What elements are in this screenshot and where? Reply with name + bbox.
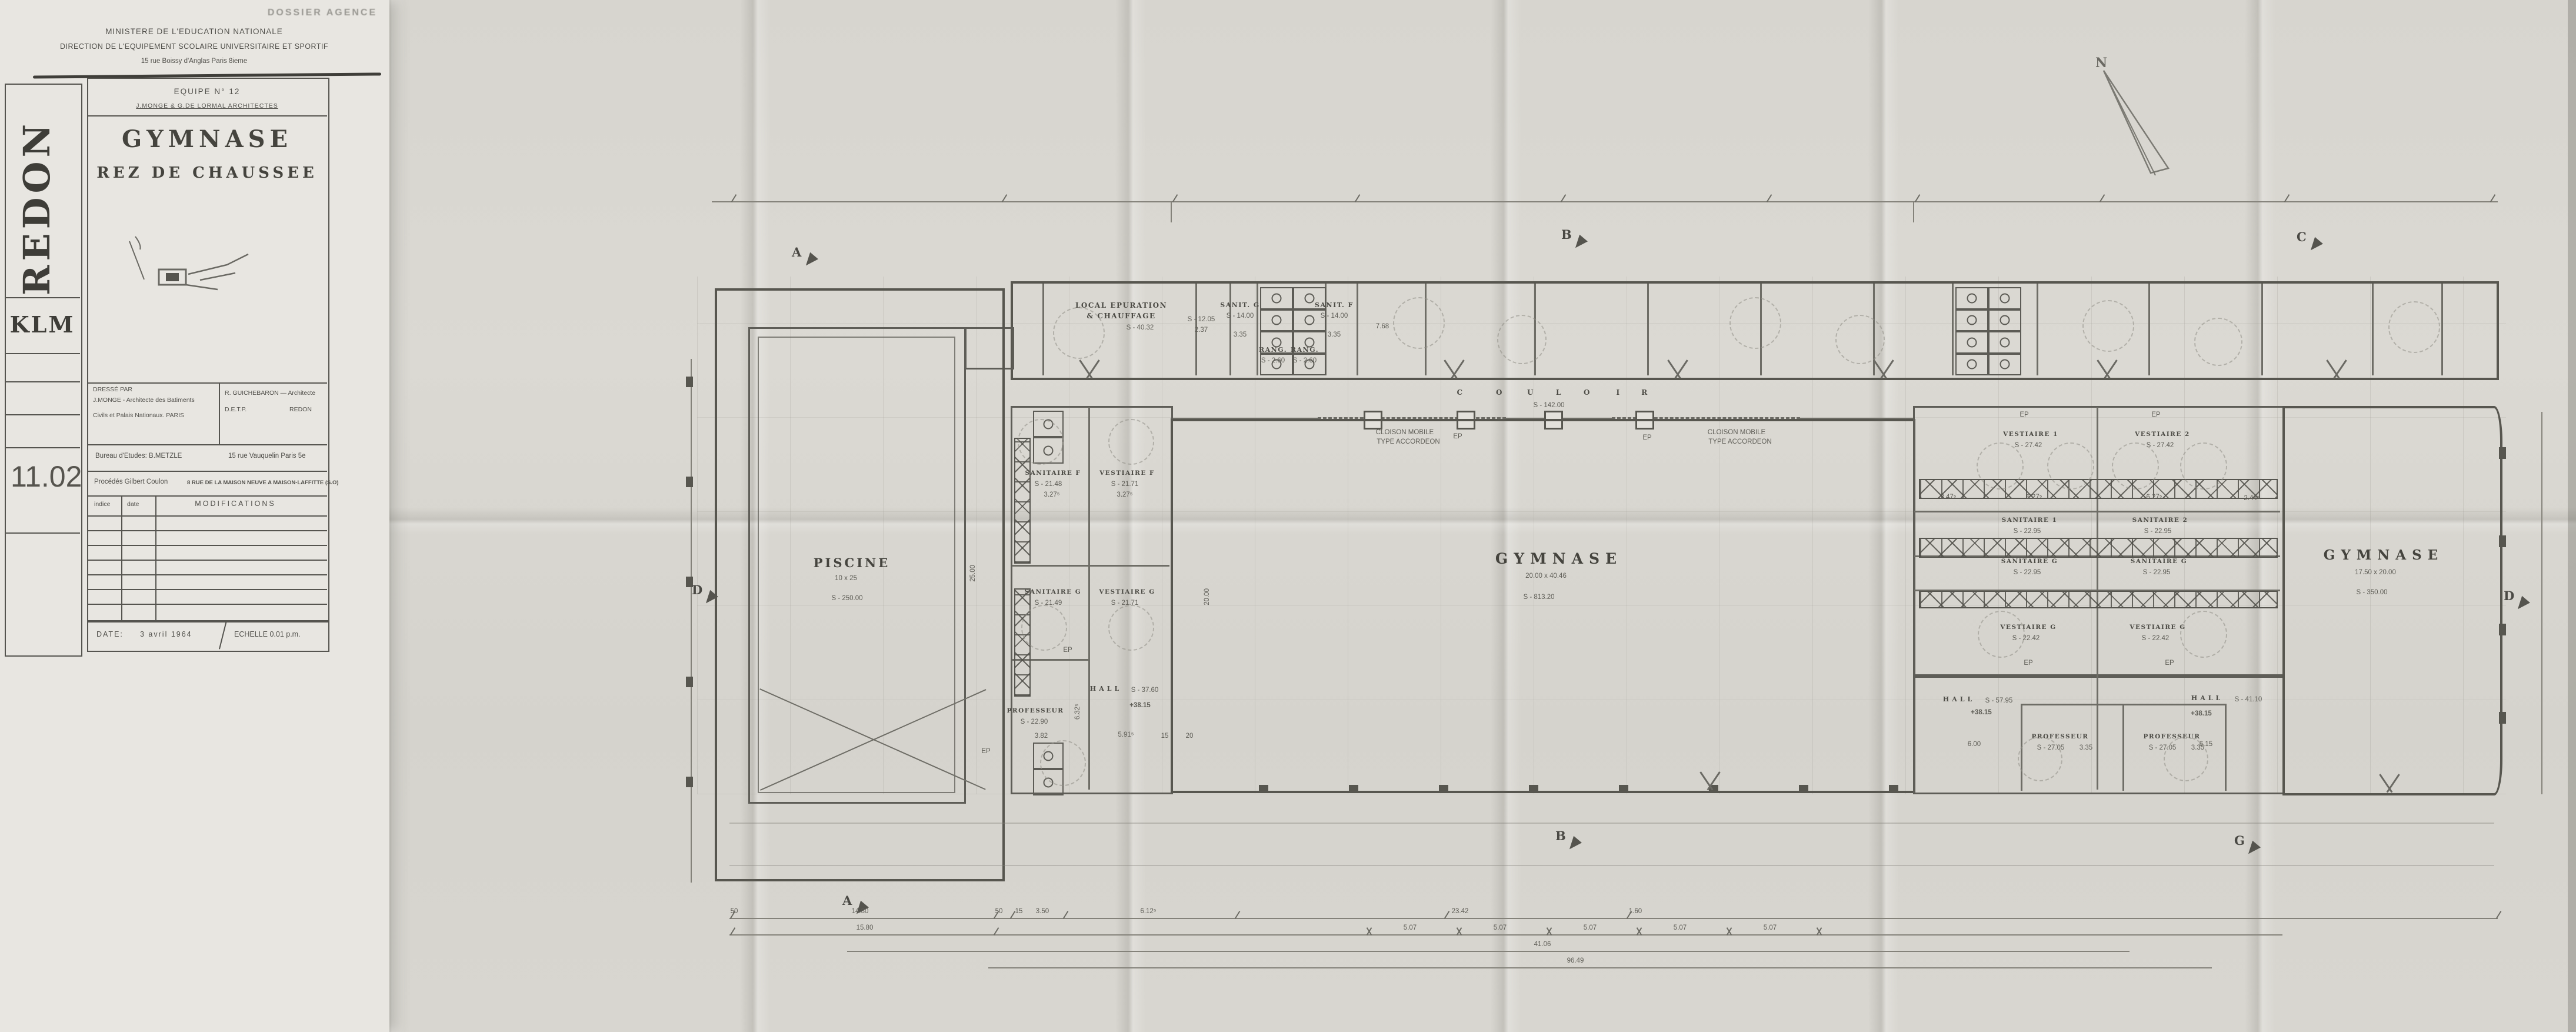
room-label: SANIT. F	[1315, 301, 1354, 309]
table-line	[87, 530, 327, 531]
room-area: S - 14.00	[1321, 312, 1348, 320]
architect1-line1: J.MONGE - Architecte des Batiments	[93, 397, 195, 405]
piscine-area: S - 250.00	[831, 594, 862, 602]
dim: 6.27⁵	[2146, 493, 2162, 501]
gymnase2-label: GYMNASE	[2324, 547, 2444, 564]
table-line	[155, 495, 156, 620]
room-label: SANITAIRE G	[2001, 558, 2058, 565]
room-area: S - 22.95	[2144, 527, 2172, 535]
couloir-letter: R	[1641, 388, 1648, 397]
divider	[87, 444, 327, 445]
blueprint-sheet: DOSSIER AGENCE MINISTERE DE L'EDUCATION …	[0, 0, 2576, 1032]
room-label: SANITAIRE G	[1025, 588, 1081, 596]
procedes: Procédés Gilbert Coulon	[94, 478, 168, 487]
city-name-vertical: REDON	[15, 89, 58, 295]
lockers	[1919, 479, 2278, 499]
divider	[5, 297, 80, 298]
dim: 5.91⁵	[1118, 731, 1134, 739]
room-dim: 3.27⁵	[1117, 491, 1132, 499]
dim-bay: 5.07	[1674, 924, 1687, 932]
divider	[5, 447, 80, 448]
gymnase-dim: 20.00 x 40.46	[1525, 572, 1567, 580]
wc-stalls	[1955, 287, 2021, 375]
dim: 6.32⁵	[1074, 704, 1081, 720]
dresse-par: DRESSÉ PAR	[93, 386, 132, 394]
date-label: DATE:	[96, 630, 124, 639]
dim: 15	[1161, 732, 1169, 740]
room-label: PROFESSEUR	[1007, 707, 1064, 715]
dim-chain-left	[691, 359, 692, 883]
dim-total-4106: 41.06	[1534, 940, 1551, 948]
couloir-letter: O	[1496, 388, 1503, 397]
col-date: date	[127, 501, 139, 509]
sheet-edge	[2568, 0, 2576, 1032]
section-marker-d-right: D	[2504, 588, 2514, 603]
divider	[5, 381, 80, 382]
room-label: SANITAIRE 1	[2002, 517, 2058, 524]
col-modifications: MODIFICATIONS	[195, 500, 275, 509]
architect2-line1: R. GUICHEBARON — Architecte	[225, 390, 315, 398]
section-marker-a-bottom: A	[842, 893, 852, 908]
dim: 2.47⁵	[1940, 493, 1956, 501]
band-dim: 7.68	[1376, 322, 1389, 331]
room-area: S - 2.60	[1293, 357, 1317, 365]
agency-stamp: DOSSIER AGENCE	[268, 7, 377, 19]
section-marker-c-top: C	[2297, 229, 2307, 244]
section-marker-g-bottom: G	[2234, 833, 2245, 848]
divider	[87, 471, 327, 472]
room-area: S - 27.42	[2015, 441, 2042, 450]
section-marker-b-top: B	[1561, 227, 1572, 242]
room-dim: 3.35	[2080, 744, 2092, 752]
room-area: S - 22.90	[1021, 718, 1048, 726]
level-mark: +38.15	[1971, 708, 1992, 717]
piscine-label: PISCINE	[814, 555, 891, 571]
bureau-address: 15 rue Vauquelin Paris 5e	[228, 452, 306, 461]
room-label: SANITAIRE G	[2131, 558, 2187, 565]
section-marker-b-bottom: B	[1555, 828, 1566, 843]
dim: 20.00	[1204, 588, 1211, 605]
ep-mark: EP	[2024, 659, 2032, 667]
couloir-letter: O	[1584, 388, 1591, 397]
dim-chain-top	[712, 201, 2498, 202]
cartouche-box	[87, 78, 329, 622]
section-marker-d-left: D	[692, 582, 702, 597]
col-indice: indice	[94, 501, 110, 509]
room-label: VESTIAIRE 1	[2003, 431, 2058, 438]
dim-50: 50	[731, 907, 738, 916]
ep-mark: EP	[981, 747, 990, 755]
room-label: HALL	[1090, 685, 1122, 693]
room-dim: 3.35	[1234, 331, 1247, 339]
room-label: VESTIAIRE F	[1099, 470, 1155, 477]
room-area: S - 22.95	[2014, 568, 2041, 577]
dim-6125: 6.12⁵	[1140, 907, 1156, 916]
divider	[87, 382, 327, 384]
dim: 3.82	[1035, 732, 1048, 740]
dim: 20	[1186, 732, 1194, 740]
dim-2342: 23.42	[1452, 907, 1469, 916]
sheet-title: GYMNASE	[122, 125, 292, 154]
halls-block	[1913, 674, 2285, 794]
ministry-line3: 15 rue Boissy d'Anglas Paris 8ieme	[141, 57, 248, 65]
room-label: RANG.	[1259, 346, 1287, 354]
ep-mark: EP	[2020, 411, 2028, 419]
room-area: S - 21.71	[1111, 480, 1139, 488]
divider	[5, 532, 80, 534]
room-dim: 2.37	[1195, 326, 1208, 334]
room-area: S - 2.60	[1261, 357, 1285, 365]
dim: 2.44⁵	[2244, 494, 2260, 502]
gymnase2-area: S - 350.00	[2356, 588, 2387, 597]
room-area: S - 22.95	[2143, 568, 2171, 577]
dim-350: 3.50	[1036, 907, 1049, 916]
ep-mark: EP	[1063, 646, 1072, 654]
room-label: SANITAIRE F	[1025, 470, 1081, 477]
room-dim: 3.35	[1328, 331, 1341, 339]
dim-bay: 5.07	[1584, 924, 1597, 932]
gymnase-hall	[1171, 419, 1915, 793]
dim-160: 1.60	[1629, 907, 1642, 916]
dim: 6.00	[1968, 740, 1981, 748]
piscine-dim: 10 x 25	[835, 574, 857, 582]
divider	[5, 414, 80, 415]
architect1-line2: Civils et Palais Nationaux. PARIS	[93, 412, 184, 420]
level-mark: +38.15	[1129, 701, 1151, 710]
level-mark: +38.15	[2191, 710, 2212, 718]
architect2-line3: REDON	[289, 406, 312, 414]
north-arrow: N	[2065, 47, 2212, 188]
drawing-number: 11.02	[11, 458, 82, 496]
couloir-letter: L	[1556, 388, 1562, 397]
room-area: S - 57.95	[1985, 697, 2013, 705]
room-label: VESTIAIRE 2	[2135, 431, 2190, 438]
dim-total-9649: 96.49	[1567, 957, 1584, 965]
divider	[87, 495, 327, 497]
divider	[87, 115, 327, 116]
sheet-subtitle: REZ DE CHAUSSEE	[96, 164, 318, 183]
table-line	[87, 604, 327, 605]
room-label: SANITAIRE 2	[2132, 517, 2188, 524]
gymnase-label: GYMNASE	[1495, 550, 1622, 568]
table-line	[87, 574, 327, 575]
room-area: S - 41.10	[2235, 695, 2262, 704]
table-line	[87, 515, 327, 517]
architectes-label: J.MONGE & G.DE LORMAL ARCHITECTES	[136, 102, 278, 110]
gymnase2-dim: 17.50 x 20.00	[2355, 568, 2396, 577]
room-area: S - 21.48	[1035, 480, 1062, 488]
procedes-address: 8 RUE DE LA MAISON NEUVE A MAISON-LAFFIT…	[187, 480, 339, 487]
table-line	[121, 495, 122, 620]
lockers	[1919, 591, 2278, 608]
architect2-line2: D.E.T.P.	[225, 406, 246, 414]
ep-mark: EP	[2165, 659, 2174, 667]
table-line	[87, 589, 327, 590]
dim-15: 15	[1015, 907, 1023, 916]
room-area: S - 22.42	[2142, 634, 2170, 642]
dim-bay: 5.07	[1764, 924, 1777, 932]
ministry-line2: DIRECTION DE L'EQUIPEMENT SCOLAIRE UNIVE…	[60, 42, 328, 52]
dim-1580: 15.80	[857, 924, 874, 932]
dim-chain-4	[988, 967, 2212, 968]
north-letter: N	[2095, 55, 2107, 71]
pool-length-dim: 25.00	[969, 565, 977, 582]
lockers	[1919, 538, 2278, 558]
dim-chain-right	[2541, 412, 2542, 794]
room-label: HALL	[2191, 694, 2223, 703]
room-dim: 3.27⁵	[1044, 491, 1059, 499]
room-label: VESTIAIRE G	[2130, 624, 2185, 631]
dim-chain-3	[847, 951, 2130, 952]
room-label: VESTIAIRE G	[1099, 588, 1155, 596]
room-area: S - 12.05	[1188, 315, 1215, 324]
room-area: S - 22.95	[2014, 527, 2041, 535]
couloir-letter: C	[1457, 388, 1463, 397]
couloir-area: S - 142.00	[1533, 401, 1564, 410]
room-area: S - 40.32	[1127, 324, 1154, 332]
divider	[5, 353, 80, 354]
bureau-etudes: Bureau d'Etudes: B.METZLE	[95, 452, 182, 461]
couloir-letter: I	[1616, 388, 1620, 397]
date-value: 3 avril 1964	[140, 630, 192, 639]
table-line	[87, 560, 327, 561]
dim-chain-2	[729, 934, 2282, 936]
section-marker-a-top: A	[792, 245, 801, 259]
room-area: S - 14.00	[1227, 312, 1254, 320]
drawing-code: KLM	[10, 311, 75, 339]
dim-1480: 14.80	[852, 907, 869, 916]
dim-bay: 5.07	[1404, 924, 1417, 932]
room-area: S - 37.60	[1131, 686, 1159, 694]
gymnase2-hall	[2282, 406, 2502, 795]
dim: 6.27⁵	[2026, 493, 2042, 501]
site-sketch	[112, 224, 265, 306]
couloir-letter: U	[1527, 388, 1534, 397]
table-line	[87, 545, 327, 546]
ep-mark: EP	[2151, 411, 2160, 419]
divider	[219, 382, 220, 444]
room-label: SANIT. G	[1220, 301, 1260, 309]
dim-bay: 5.07	[1494, 924, 1507, 932]
gymnase-area: S - 813.20	[1523, 593, 1554, 601]
room-label: RANG.	[1291, 346, 1319, 354]
dim-50: 50	[995, 907, 1003, 916]
equipe-label: EQUIPE N° 12	[174, 87, 241, 97]
title-panel: DOSSIER AGENCE MINISTERE DE L'EDUCATION …	[0, 0, 389, 1032]
ministry-line1: MINISTERE DE L'EDUCATION NATIONALE	[105, 27, 283, 37]
echelle: ECHELLE 0.01 p.m.	[234, 630, 301, 639]
room-label: HALL	[1943, 695, 1975, 704]
